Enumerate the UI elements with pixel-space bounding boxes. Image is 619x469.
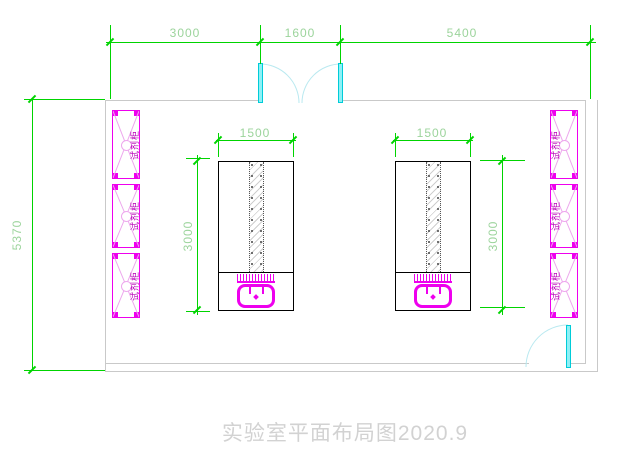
reagent-cabinet: 试剂柜 — [112, 253, 140, 318]
bottom-door-arc — [526, 325, 568, 367]
room-height-extension-bottom — [24, 370, 105, 371]
dim-label-right-bench-width: 1500 — [407, 126, 457, 140]
reagent-cabinet: 试剂柜 — [112, 110, 140, 179]
top-dimension-line — [106, 42, 596, 43]
bench-divider — [396, 272, 470, 273]
top-dim-extension-4 — [590, 25, 591, 99]
wall-bottom-outer — [105, 371, 598, 372]
bench-reagent-strip — [249, 162, 264, 272]
dim-label-top-middle: 1600 — [275, 26, 325, 40]
dim-line — [197, 155, 198, 315]
double-door-left-leaf — [258, 63, 263, 103]
cabinet-label: 试剂柜 — [549, 125, 561, 165]
wall-top-left-segment — [105, 100, 259, 101]
double-door-right-leaf — [338, 63, 343, 103]
dim-label-right-bench-length: 3000 — [486, 211, 500, 261]
wall-left — [105, 100, 106, 372]
cabinet-label: 试剂柜 — [128, 125, 140, 165]
dim-label-room-height: 5370 — [10, 210, 24, 260]
top-dim-extension-1 — [110, 25, 111, 99]
faucet-mark — [249, 287, 251, 294]
dim-extension — [186, 311, 210, 312]
cad-floorplan-drawing: 3000 1600 5400 5370 1500 30 — [0, 0, 619, 469]
faucet-mark — [262, 287, 264, 294]
reagent-cabinet: 试剂柜 — [112, 184, 140, 248]
drawing-title: 实验室平面布局图2020.9 — [215, 417, 475, 447]
sink-drain-bar — [414, 281, 452, 283]
sink-drain-grille — [414, 274, 452, 281]
bench-divider — [219, 272, 293, 273]
room-height-dim-line — [32, 99, 33, 371]
top-dim-extension-2 — [260, 25, 261, 64]
double-door-right-arc — [302, 64, 341, 103]
dim-label-top-right: 5400 — [437, 26, 487, 40]
top-dim-extension-3 — [340, 25, 341, 64]
faucet-mark — [439, 287, 441, 294]
dim-line — [502, 155, 503, 315]
wall-right-outer — [597, 100, 598, 372]
wall-top-right-segment — [342, 100, 585, 101]
dim-line — [393, 140, 473, 141]
cabinet-label: 试剂柜 — [128, 266, 140, 306]
lab-bench-left — [218, 161, 294, 311]
reagent-cabinet: 试剂柜 — [550, 110, 578, 179]
cabinet-label: 试剂柜 — [549, 196, 561, 236]
wall-right-inner — [585, 100, 586, 364]
bench-reagent-strip — [426, 162, 441, 272]
reagent-cabinet: 试剂柜 — [550, 184, 578, 248]
room-height-extension-top — [24, 99, 105, 100]
cabinet-label: 试剂柜 — [128, 196, 140, 236]
reagent-cabinet: 试剂柜 — [550, 253, 578, 318]
door-swing-arcs — [0, 0, 619, 469]
sink-drain-bar — [237, 281, 275, 283]
dim-label-left-bench-width: 1500 — [230, 126, 280, 140]
double-door-left-arc — [260, 64, 299, 103]
sink-drain-grille — [237, 274, 275, 281]
dim-line — [216, 140, 296, 141]
dim-label-left-bench-length: 3000 — [181, 211, 195, 261]
bottom-door-leaf — [566, 325, 571, 368]
faucet-mark — [426, 287, 428, 294]
wall-bottom-inner-left-segment — [105, 363, 529, 364]
cabinet-label: 试剂柜 — [549, 266, 561, 306]
dim-label-top-left: 3000 — [160, 26, 210, 40]
lab-bench-right — [395, 161, 471, 311]
